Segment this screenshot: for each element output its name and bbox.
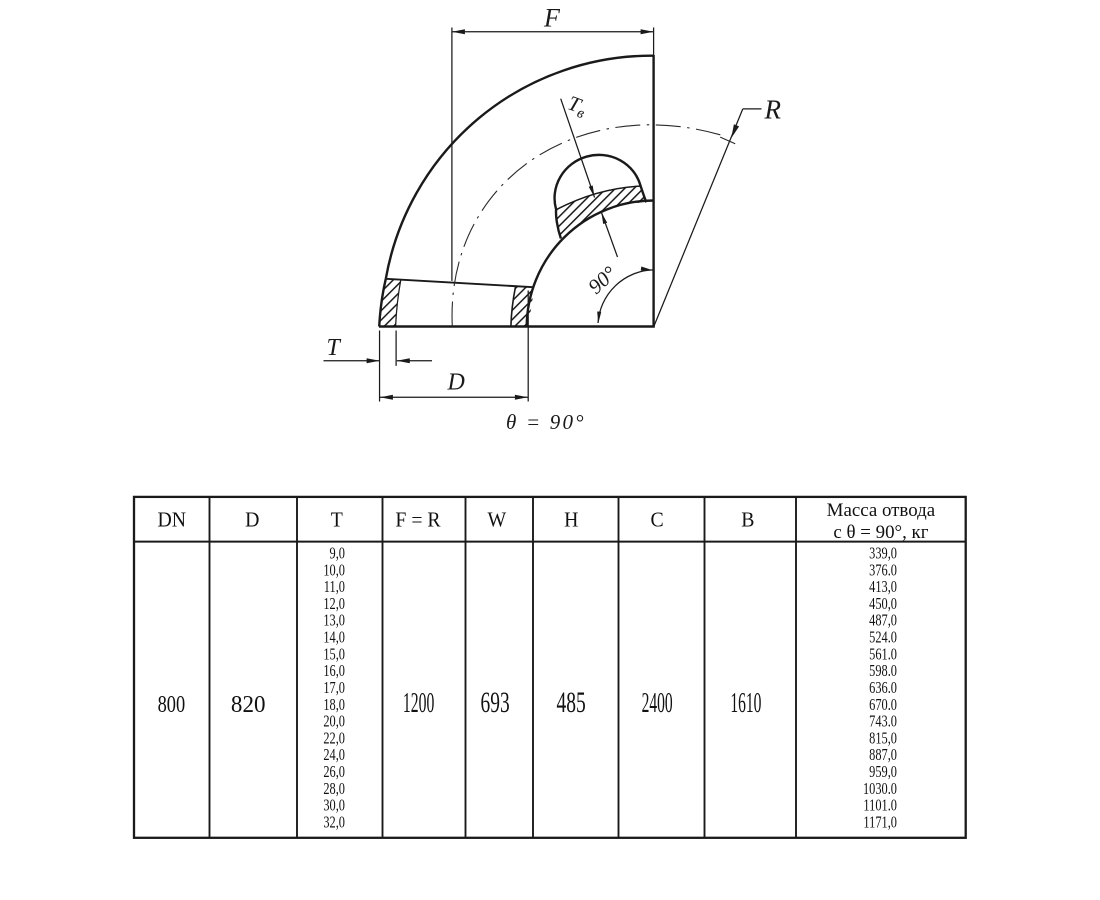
svg-text:13,0: 13,0: [323, 612, 345, 630]
svg-text:1171,0: 1171,0: [863, 814, 897, 832]
svg-text:F: F: [543, 4, 561, 33]
svg-text:26,0: 26,0: [323, 763, 345, 781]
svg-text:887,0: 887,0: [869, 747, 897, 765]
svg-text:1101.0: 1101.0: [863, 797, 897, 815]
svg-text:T: T: [331, 509, 343, 532]
svg-text:524.0: 524.0: [869, 629, 897, 647]
svg-text:693: 693: [480, 687, 509, 719]
svg-text:376.0: 376.0: [869, 562, 897, 580]
svg-text:339,0: 339,0: [869, 545, 897, 563]
svg-text:16,0: 16,0: [323, 663, 345, 681]
svg-text:636.0: 636.0: [869, 679, 897, 697]
svg-text:485: 485: [556, 687, 585, 719]
svg-text:с θ = 90°, кг: с θ = 90°, кг: [833, 522, 928, 543]
svg-text:598.0: 598.0: [869, 663, 897, 681]
svg-text:11,0: 11,0: [324, 579, 345, 597]
svg-text:1610: 1610: [730, 687, 761, 718]
svg-text:28,0: 28,0: [323, 780, 345, 798]
svg-text:B: B: [741, 509, 754, 532]
svg-text:670.0: 670.0: [869, 696, 897, 714]
svg-text:D: D: [447, 370, 465, 396]
svg-text:413,0: 413,0: [869, 579, 897, 597]
svg-text:Масса отвода: Масса отвода: [827, 500, 936, 521]
svg-text:DN: DN: [158, 509, 187, 532]
svg-text:800: 800: [158, 691, 186, 718]
svg-text:24,0: 24,0: [323, 747, 345, 765]
svg-text:820: 820: [231, 691, 266, 718]
svg-text:θ = 90°: θ = 90°: [506, 410, 586, 434]
svg-text:F = R: F = R: [395, 509, 440, 532]
svg-text:W: W: [487, 509, 506, 532]
svg-text:487,0: 487,0: [869, 612, 897, 630]
svg-text:D: D: [245, 509, 259, 532]
svg-text:30,0: 30,0: [323, 797, 345, 815]
svg-text:15,0: 15,0: [323, 646, 345, 664]
svg-text:12,0: 12,0: [323, 595, 345, 613]
svg-text:1030.0: 1030.0: [863, 780, 897, 798]
svg-text:17,0: 17,0: [323, 679, 345, 697]
svg-text:20,0: 20,0: [323, 713, 345, 731]
svg-text:561.0: 561.0: [869, 646, 897, 664]
svg-text:2400: 2400: [642, 687, 673, 718]
svg-text:C: C: [651, 509, 664, 532]
svg-text:T: T: [327, 335, 342, 361]
svg-text:32,0: 32,0: [323, 814, 345, 832]
svg-text:H: H: [564, 509, 578, 532]
svg-text:R: R: [764, 95, 782, 125]
svg-text:1200: 1200: [403, 687, 434, 718]
svg-text:959,0: 959,0: [869, 763, 897, 781]
svg-text:450,0: 450,0: [869, 595, 897, 613]
svg-text:9,0: 9,0: [330, 545, 345, 563]
svg-text:10,0: 10,0: [323, 562, 345, 580]
svg-text:743.0: 743.0: [869, 713, 897, 731]
svg-text:22,0: 22,0: [323, 730, 345, 748]
svg-text:14,0: 14,0: [323, 629, 345, 647]
svg-text:18,0: 18,0: [323, 696, 345, 714]
svg-text:815,0: 815,0: [869, 730, 897, 748]
